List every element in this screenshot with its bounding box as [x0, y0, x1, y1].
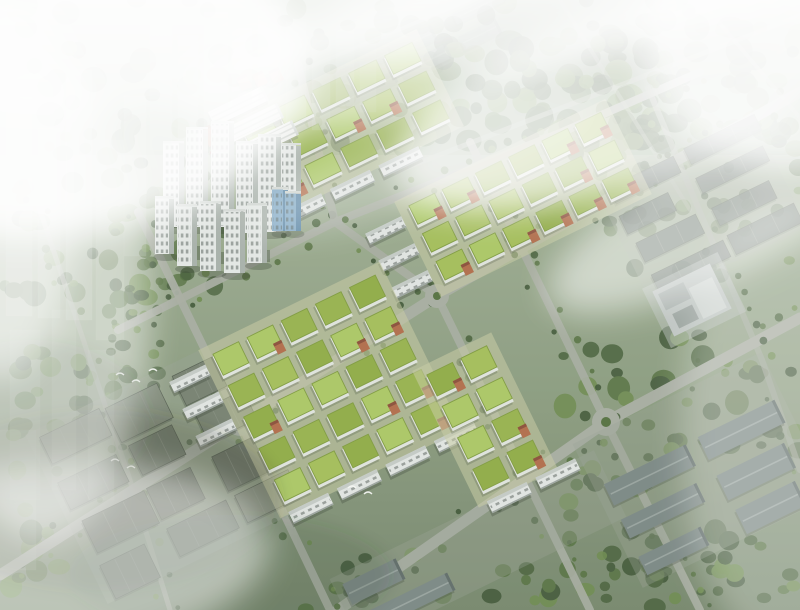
haze-veil: [0, 0, 800, 610]
aerial-scene-svg: [0, 0, 800, 610]
rendering-frame: [0, 0, 800, 610]
